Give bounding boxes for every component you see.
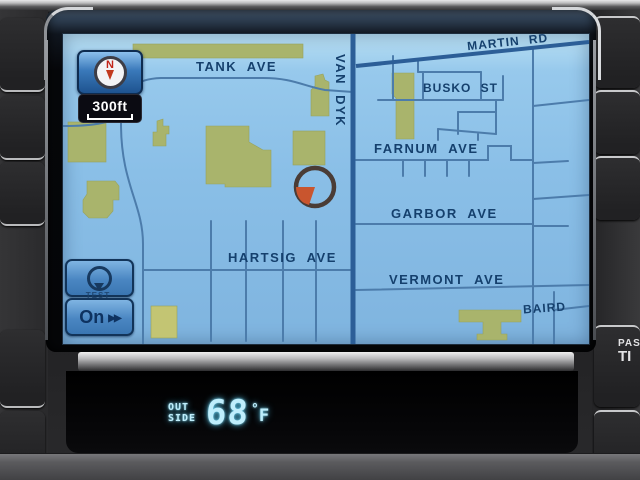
map-scale-badge[interactable]: 300ft [78, 94, 142, 123]
audio-on-button[interactable]: On ▶▶ [65, 298, 134, 336]
console-silver-trim [78, 352, 574, 371]
compass-needle-icon [106, 70, 114, 80]
map-scale-label: 300ft [92, 98, 127, 114]
circle-arrow-icon [87, 266, 112, 291]
passenger-temp-button[interactable]: PAS TI [594, 325, 640, 407]
temperature-value: 68 [205, 393, 250, 433]
fahrenheit-unit: F [259, 406, 269, 426]
street-label-garbor-ave: GARBOR AVE [391, 206, 498, 221]
car-dashboard: PAS TI [0, 0, 640, 480]
dash-button-left-1[interactable] [0, 18, 45, 92]
right-dash-panel: PAS TI [592, 10, 640, 480]
compass-orientation-button[interactable]: N [77, 50, 143, 95]
street-label-tank-ave: TANK AVE [196, 59, 277, 74]
dash-button-left-4[interactable] [0, 330, 45, 408]
bezel-edge-right [593, 40, 596, 340]
street-label-hartsig-ave: HARTSIG AVE [228, 250, 337, 265]
bezel-edge-left [45, 40, 48, 340]
street-label-busko-st: BUSKO ST [423, 81, 498, 95]
dash-button-right-3[interactable] [594, 156, 640, 220]
nav-map-screen[interactable]: TANK AVE VAN DYK MARTIN RD BUSKO ST FARN… [62, 33, 590, 345]
outside-temperature-readout: OUT SIDE 68 ° F [168, 393, 269, 433]
lower-dash-trim [0, 453, 640, 480]
dash-button-left-2[interactable] [0, 96, 45, 160]
vehicle-position-marker [296, 168, 334, 206]
outside-label: OUT SIDE [168, 402, 196, 424]
street-label-baird: BAIRD [523, 300, 567, 317]
dash-button-left-3[interactable] [0, 162, 45, 226]
climate-display-panel: OUT SIDE 68 ° F [66, 371, 578, 453]
street-label-vermont-ave: VERMONT AVE [389, 272, 504, 287]
audio-on-label: On [79, 307, 104, 328]
street-label-van-dyke: VAN DYK [333, 54, 348, 127]
compass-icon: N [94, 56, 127, 89]
street-label-farnum-ave: FARNUM AVE [374, 141, 479, 156]
passenger-temp-label: PAS TI [618, 337, 640, 363]
dash-button-right-2[interactable] [594, 90, 640, 154]
scale-bar-icon [87, 114, 133, 120]
degree-symbol: ° [251, 402, 259, 417]
fast-forward-icon: ▶▶ [108, 313, 119, 324]
left-dash-panel [0, 10, 48, 480]
